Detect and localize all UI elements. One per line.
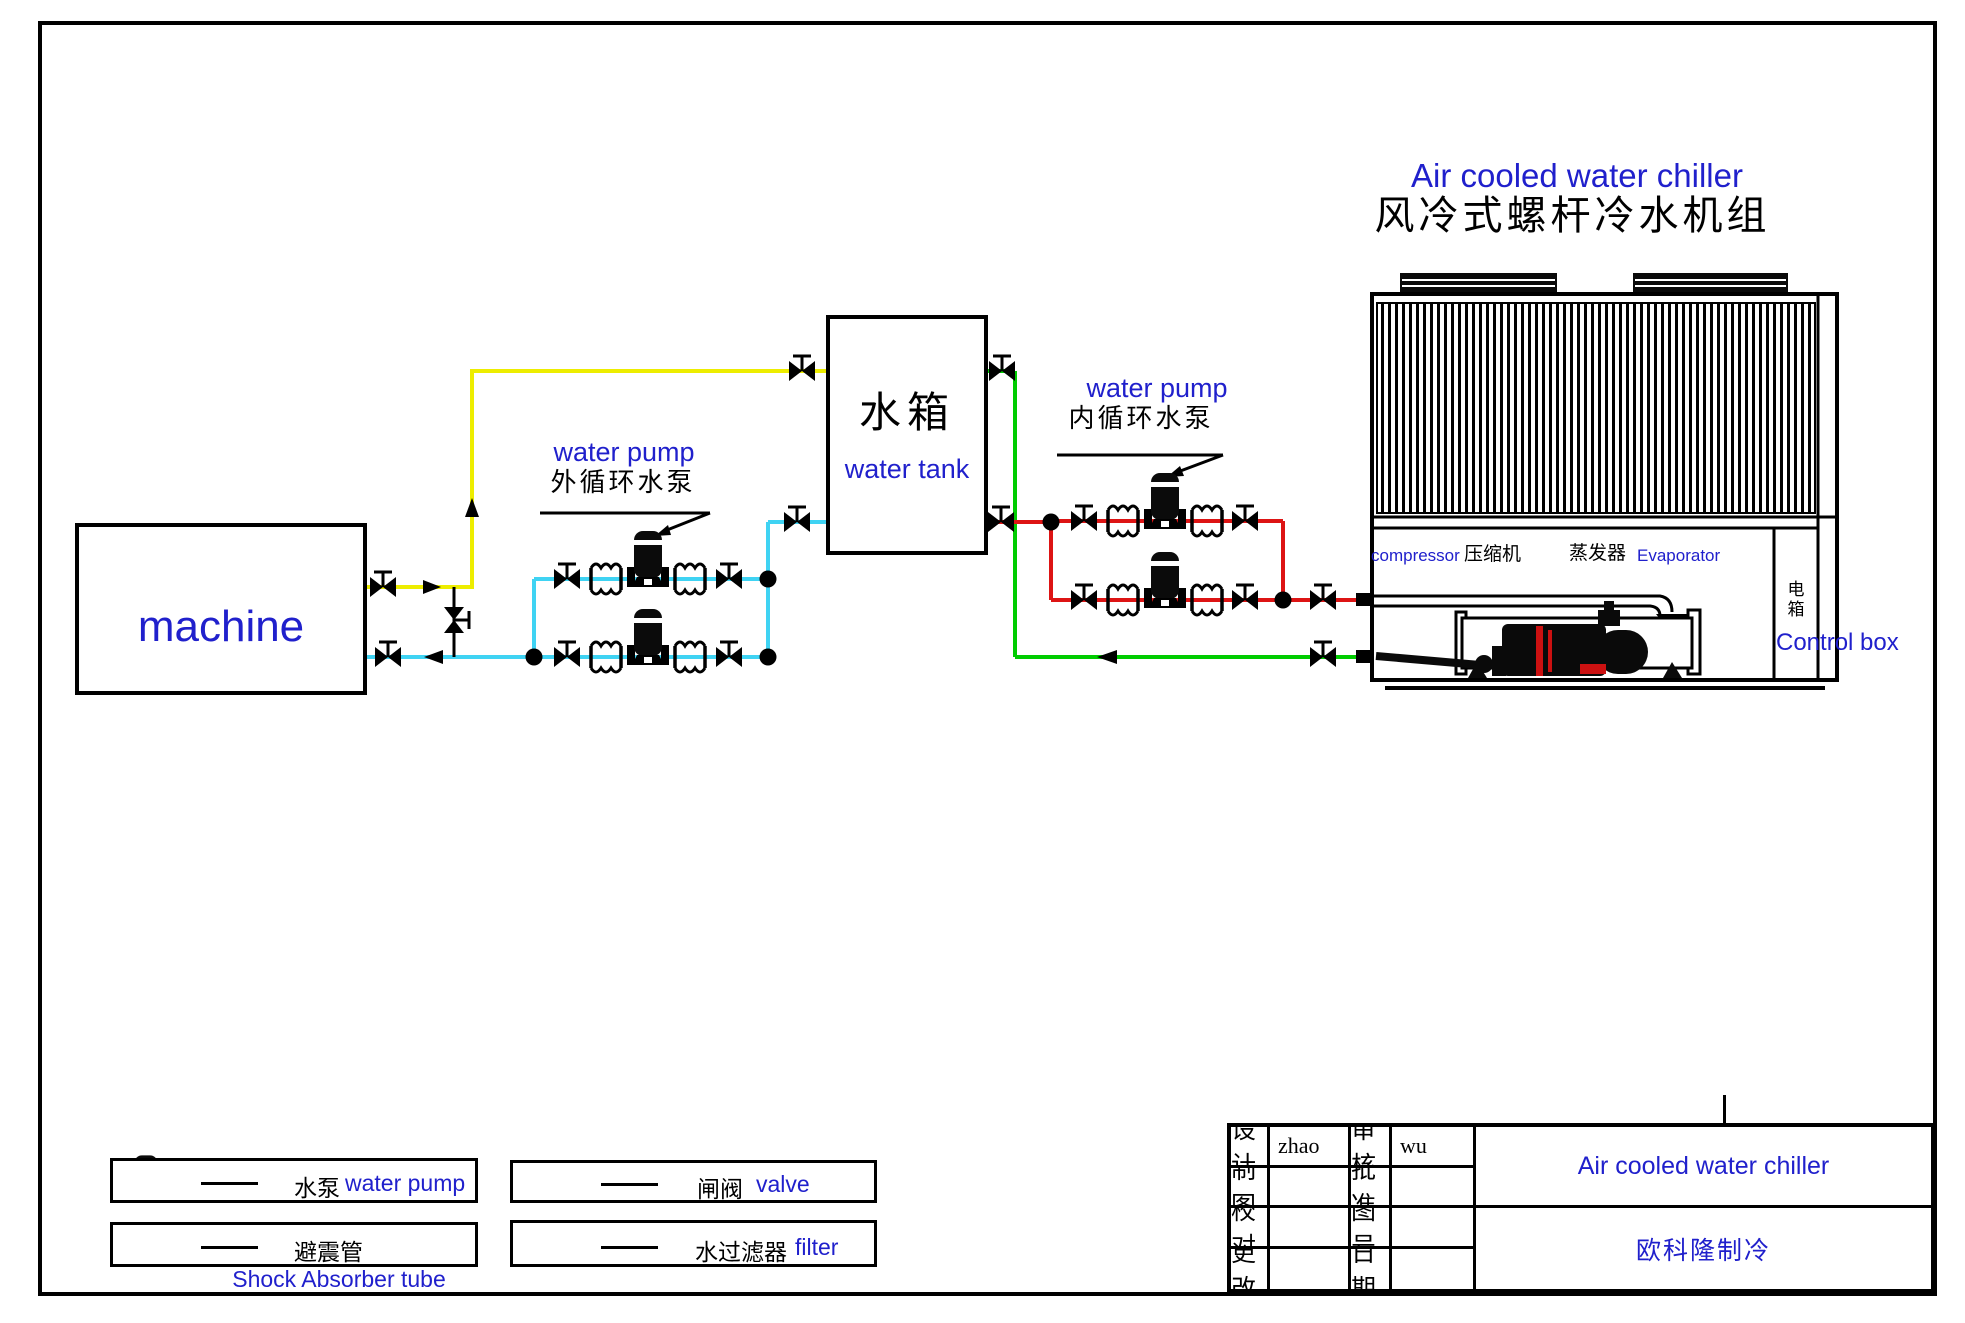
- draft-label: 制图: [1231, 1168, 1270, 1209]
- condenser-coil: [1377, 303, 1815, 513]
- pump-icon: [627, 609, 669, 665]
- approve-label: 批准: [1351, 1168, 1392, 1209]
- valve-icon: [554, 642, 580, 667]
- drawing-no-label: 图号: [1351, 1208, 1392, 1249]
- water-tank-label-zh: 水箱: [830, 391, 984, 437]
- pump-icon: [1144, 473, 1186, 529]
- fan-grille: [1400, 273, 1557, 294]
- approve-value: [1392, 1168, 1476, 1209]
- legend-water-pump-en: water pump: [345, 1170, 465, 1197]
- legend-line-sample: [601, 1246, 658, 1249]
- valve-icon: [375, 642, 401, 667]
- drawing-no-value: [1392, 1208, 1476, 1249]
- design-value: zhao: [1270, 1127, 1351, 1168]
- pump-icon: [627, 531, 669, 587]
- water-tank-label-en: water tank: [830, 455, 984, 485]
- flow-arrow-right: [423, 580, 441, 594]
- draft-value: [1270, 1168, 1351, 1209]
- review-value: wu: [1392, 1127, 1476, 1168]
- valve-icon: [1232, 585, 1258, 610]
- internal-pump-label-en: water pump: [1007, 374, 1307, 404]
- valve-icon: [1232, 506, 1258, 531]
- flow-arrow-left: [424, 650, 443, 664]
- change-value: [1270, 1249, 1351, 1290]
- machine-label: machine: [79, 603, 363, 651]
- legend-row-water-pump: 水泵 water pump: [110, 1158, 478, 1203]
- drawing-sheet: Air cooled water chiller 风冷式螺杆冷水机组 machi…: [0, 0, 1965, 1323]
- fan-grille: [1633, 273, 1788, 294]
- check-label: 校对: [1231, 1208, 1270, 1249]
- evaporator-label-en: Evaporator: [1637, 547, 1720, 566]
- legend-row-valve: 闸阀 valve: [510, 1160, 877, 1203]
- date-label: 日期: [1351, 1249, 1392, 1290]
- legend-filter-zh: 水过滤器: [695, 1233, 787, 1267]
- legend-filter-en: filter: [795, 1234, 838, 1261]
- compressor-label-zh: 压缩机: [1464, 545, 1521, 566]
- flow-arrow-up: [465, 498, 479, 517]
- valve-icon: [444, 607, 469, 633]
- title-block-company: 欧科隆制冷: [1476, 1208, 1931, 1289]
- valve-icon: [789, 356, 815, 381]
- legend-line-sample: [201, 1246, 258, 1249]
- evaporator-label-zh: 蒸发器: [1569, 544, 1626, 565]
- internal-pump-label-zh: 内循环水泵: [991, 405, 1291, 434]
- legend-shock-zh: 避震管: [294, 1233, 363, 1267]
- title-block-project-title: Air cooled water chiller: [1476, 1127, 1931, 1208]
- legend-line-sample: [601, 1183, 658, 1186]
- legend-row-shock-absorber: 避震管: [110, 1222, 478, 1267]
- valve-icon: [1071, 585, 1097, 610]
- external-pump-label-zh: 外循环水泵: [473, 469, 773, 498]
- legend-shock-en: Shock Absorber tube: [223, 1267, 455, 1292]
- valve-icon: [554, 564, 580, 589]
- legend-valve-en: valve: [756, 1171, 810, 1198]
- valve-icon: [784, 507, 810, 532]
- valve-icon: [988, 507, 1014, 532]
- valve-icon: [1071, 506, 1097, 531]
- external-pump-label-en: water pump: [474, 438, 774, 468]
- valve-icon: [1310, 642, 1336, 667]
- check-value: [1270, 1208, 1351, 1249]
- pump-icon: [1144, 552, 1186, 608]
- review-label: 审核: [1351, 1127, 1392, 1168]
- legend-line-sample: [201, 1182, 258, 1185]
- chiller-title-en: Air cooled water chiller: [1377, 158, 1777, 194]
- legend-water-pump-zh: 水泵: [294, 1169, 340, 1203]
- compressor-label-en: compressor: [1371, 547, 1460, 566]
- control-box-label-en: Control box: [1776, 630, 1899, 656]
- chiller-title-zh: 风冷式螺杆冷水机组: [1340, 194, 1805, 238]
- valve-icon: [716, 642, 742, 667]
- valve-icon: [716, 564, 742, 589]
- flow-arrow-left: [1097, 650, 1117, 664]
- legend-row-filter: 水过滤器 filter: [510, 1220, 877, 1267]
- water-tank-box: 水箱 water tank: [826, 315, 988, 555]
- date-value: [1392, 1249, 1476, 1290]
- design-label: 设计: [1231, 1127, 1270, 1168]
- valve-icon: [1310, 585, 1336, 610]
- control-box-label-zh: 电箱: [1786, 580, 1806, 620]
- chiller-unit: [1356, 273, 1837, 688]
- valve-icon: [370, 572, 396, 597]
- change-label: 更改: [1231, 1249, 1270, 1290]
- title-block: 设计 zhao 审核 wu Air cooled water chiller 制…: [1227, 1123, 1935, 1293]
- machine-box: machine: [75, 523, 367, 695]
- legend-valve-zh: 闸阀: [697, 1170, 743, 1204]
